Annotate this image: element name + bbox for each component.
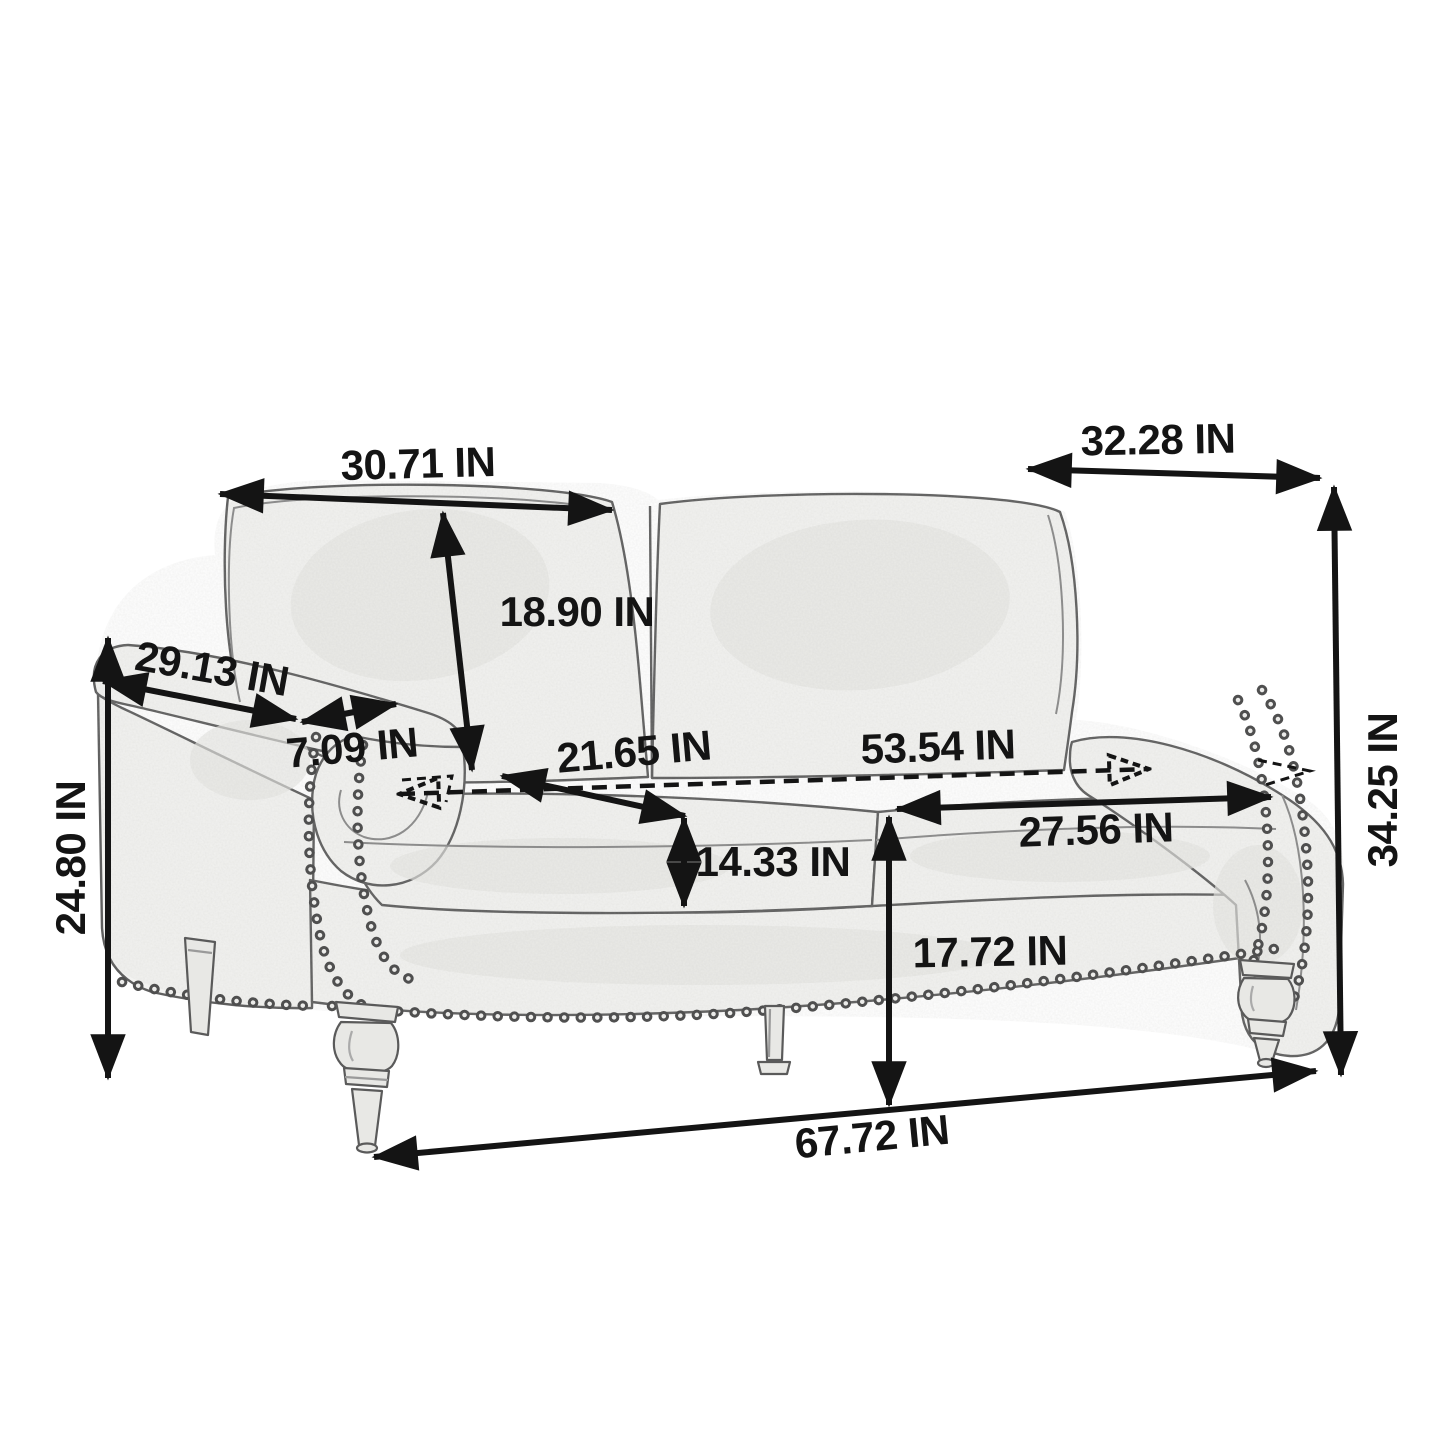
dim-label-arm-width: 7.09 IN	[284, 721, 419, 774]
dim-label-overall-height: 34.25 IN	[1362, 713, 1404, 868]
dim-label-overall-depth: 32.28 IN	[1080, 418, 1235, 463]
dim-label-back-cushion-width: 30.71 IN	[340, 441, 496, 487]
pencil-grain-texture	[90, 470, 1360, 1090]
dim-label-seat-cushion-width: 27.56 IN	[1018, 806, 1174, 853]
sofa-sketch	[0, 0, 1445, 1445]
dim-label-seat-width: 53.54 IN	[860, 723, 1016, 770]
dim-label-back-cushion-height: 18.90 IN	[500, 591, 655, 633]
dim-label-seat-cushion-thickness: 14.33 IN	[696, 841, 851, 883]
front-left-turned-leg	[334, 1002, 398, 1153]
dim-label-seat-height: 17.72 IN	[912, 930, 1067, 975]
back-left-leg	[185, 938, 215, 1035]
arrow-overall-depth	[1028, 469, 1320, 478]
dim-label-arm-height: 24.80 IN	[50, 781, 92, 936]
dimension-diagram: 30.71 IN 32.28 IN 18.90 IN 29.13 IN 7.09…	[0, 0, 1445, 1445]
